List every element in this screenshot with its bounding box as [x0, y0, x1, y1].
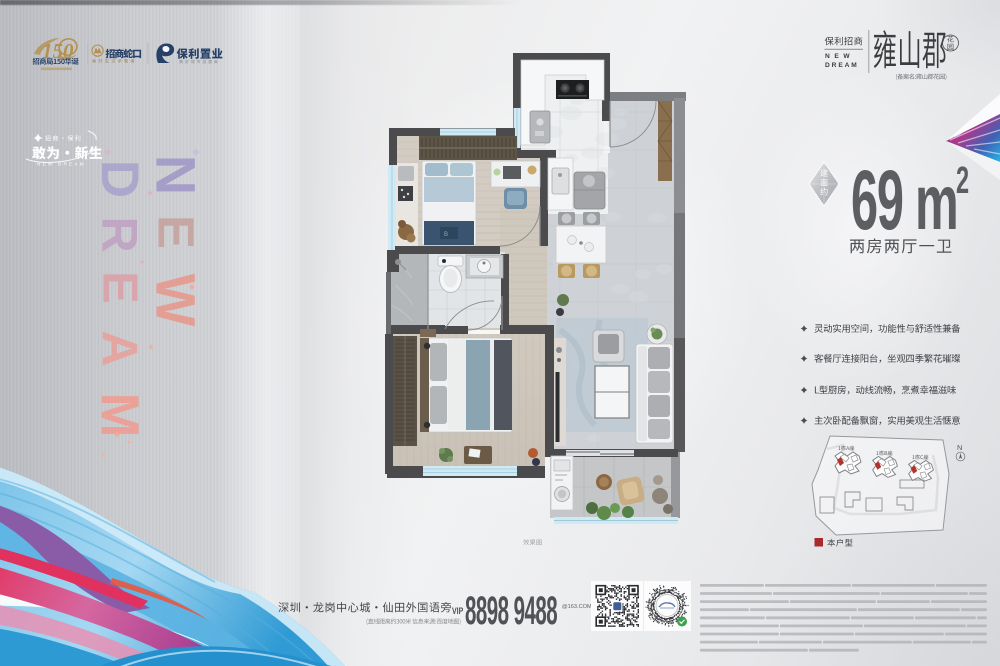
svg-text:N: N [957, 443, 962, 452]
svg-text:N: N [145, 155, 208, 195]
svg-text:8898 9488: 8898 9488 [465, 587, 557, 632]
svg-text:E: E [148, 215, 205, 249]
svg-text:@163.COM: @163.COM [562, 604, 592, 610]
svg-text:W: W [145, 274, 208, 327]
svg-text:NEW DREAM: NEW DREAM [37, 162, 86, 168]
svg-text:69: 69 [851, 153, 903, 247]
svg-text:E: E [93, 271, 147, 304]
svg-text:DREAM: DREAM [825, 62, 859, 69]
svg-text:2: 2 [956, 158, 969, 201]
svg-text:R: R [92, 216, 148, 252]
svg-text:M: M [90, 393, 150, 438]
svg-text:NEW: NEW [825, 53, 854, 60]
svg-text:A: A [92, 330, 148, 366]
svg-text:m: m [915, 158, 959, 245]
svg-text:VIP: VIP [452, 606, 464, 616]
svg-text:D: D [90, 160, 149, 198]
